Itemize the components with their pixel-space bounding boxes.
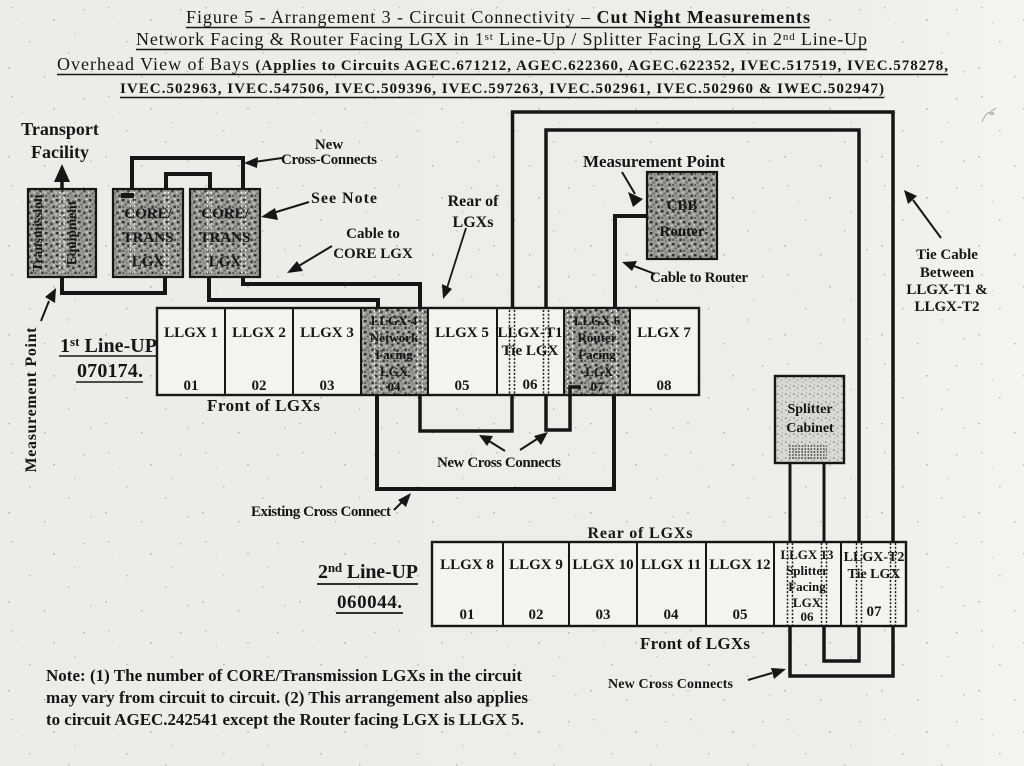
svg-text:Tie LGX: Tie LGX xyxy=(502,343,559,359)
svg-text:CORE LGX: CORE LGX xyxy=(333,246,413,262)
svg-text:LLGX 4: LLGX 4 xyxy=(371,313,418,328)
svg-text:Facing: Facing xyxy=(788,579,826,594)
svg-text:TRANS: TRANS xyxy=(123,230,174,246)
svg-text:Router: Router xyxy=(578,330,617,345)
svg-text:LGX: LGX xyxy=(132,254,165,270)
svg-text:03: 03 xyxy=(596,607,611,623)
svg-text:LLGX-T1: LLGX-T1 xyxy=(497,325,562,341)
svg-text:LGX: LGX xyxy=(380,364,409,379)
svg-text:LGXs: LGXs xyxy=(453,214,494,231)
svg-text:05: 05 xyxy=(455,378,470,394)
svg-text:LLGX 7: LLGX 7 xyxy=(637,325,691,341)
svg-text:LLGX 3: LLGX 3 xyxy=(300,325,354,341)
svg-text:Network: Network xyxy=(370,330,419,345)
svg-text:01: 01 xyxy=(184,378,199,394)
svg-text:04: 04 xyxy=(388,379,402,394)
svg-text:03: 03 xyxy=(320,378,335,394)
svg-text:CBB: CBB xyxy=(667,198,698,214)
svg-text:LLGX 11: LLGX 11 xyxy=(641,557,701,573)
svg-text:See Note: See Note xyxy=(311,190,377,207)
svg-text:LLGX 9: LLGX 9 xyxy=(509,557,563,573)
svg-text:Facility: Facility xyxy=(31,142,89,162)
svg-text:Front of LGXs: Front of LGXs xyxy=(640,634,750,653)
svg-text:Measurement Point: Measurement Point xyxy=(583,152,725,171)
svg-text:Splitter: Splitter xyxy=(786,563,828,578)
svg-text:Measurement Point: Measurement Point xyxy=(23,327,40,473)
svg-text:05: 05 xyxy=(733,607,748,623)
svg-text:New Cross Connects: New Cross Connects xyxy=(608,677,734,692)
svg-text:LLGX 2: LLGX 2 xyxy=(232,325,286,341)
svg-text:07: 07 xyxy=(591,379,605,394)
svg-text:LLGX-T1 &: LLGX-T1 & xyxy=(906,282,987,298)
svg-text:CORE/: CORE/ xyxy=(201,206,249,222)
svg-text:TRANS: TRANS xyxy=(200,230,251,246)
svg-text:LLGX 12: LLGX 12 xyxy=(709,557,770,573)
svg-text:Equipment: Equipment xyxy=(64,200,79,265)
svg-text:Between: Between xyxy=(920,265,975,281)
svg-text:Tie LGX: Tie LGX xyxy=(847,567,900,582)
svg-text:08: 08 xyxy=(657,378,672,394)
svg-text:Cabinet: Cabinet xyxy=(786,421,834,436)
svg-text:LGX: LGX xyxy=(793,595,822,610)
svg-text:060044.: 060044. xyxy=(337,592,402,613)
svg-text:Network Facing & Router Facing: Network Facing & Router Facing LGX in 1s… xyxy=(136,29,867,49)
svg-text:LLGX 6: LLGX 6 xyxy=(574,313,621,328)
svg-text:LLGX 10: LLGX 10 xyxy=(572,557,633,573)
svg-text:Facing: Facing xyxy=(375,347,413,362)
svg-text:IVEC.502963, IVEC.547506, IVEC: IVEC.502963, IVEC.547506, IVEC.509396, I… xyxy=(120,81,884,97)
svg-text:07: 07 xyxy=(867,604,883,620)
svg-text:Cross-Connects: Cross-Connects xyxy=(281,152,377,168)
svg-text:Router: Router xyxy=(660,224,705,240)
svg-text:Transport: Transport xyxy=(21,119,99,139)
svg-text:New: New xyxy=(315,137,343,153)
svg-text:02: 02 xyxy=(529,607,544,623)
svg-text:LLGX-T2: LLGX-T2 xyxy=(914,299,979,315)
svg-text:070174.: 070174. xyxy=(77,360,143,382)
svg-text:Cable to Router: Cable to Router xyxy=(650,270,748,286)
svg-text:Tie Cable: Tie Cable xyxy=(916,247,978,263)
svg-text:04: 04 xyxy=(664,607,680,623)
svg-text:to circuit AGEC.242541 except: to circuit AGEC.242541 except the Router… xyxy=(46,710,524,729)
svg-text:-LGX: -LGX xyxy=(581,364,614,379)
svg-text:may vary from circuit to circu: may vary from circuit to circuit. (2) Th… xyxy=(46,688,528,707)
svg-text:Rear of: Rear of xyxy=(448,193,499,210)
svg-text:Facing: Facing xyxy=(578,347,616,362)
svg-text:Cable to: Cable to xyxy=(346,226,400,242)
svg-text:Figure 5 - Arrangement 3 - Cir: Figure 5 - Arrangement 3 - Circuit Conne… xyxy=(186,7,810,27)
svg-text:CORE/: CORE/ xyxy=(124,206,172,222)
svg-text:06: 06 xyxy=(801,609,815,624)
svg-text:New Cross Connects: New Cross Connects xyxy=(437,455,561,471)
svg-text:Transmission: Transmission xyxy=(30,194,45,272)
svg-text:LGX: LGX xyxy=(209,254,242,270)
svg-text:LLGX 1: LLGX 1 xyxy=(164,325,218,341)
svg-text:LLGX 5: LLGX 5 xyxy=(435,325,489,341)
svg-text:01: 01 xyxy=(460,607,475,623)
svg-text:02: 02 xyxy=(252,378,267,394)
svg-text:LLGX-T2: LLGX-T2 xyxy=(844,550,905,565)
svg-text:LLGX 13: LLGX 13 xyxy=(780,547,834,562)
svg-text:LLGX 8: LLGX 8 xyxy=(440,557,494,573)
svg-text:Rear of LGXs: Rear of LGXs xyxy=(588,525,693,542)
svg-text:Note: (1) The number of CORE/T: Note: (1) The number of CORE/Transmissio… xyxy=(46,666,522,685)
svg-text:Front of LGXs: Front of LGXs xyxy=(207,396,320,415)
svg-text:Splitter: Splitter xyxy=(787,402,832,417)
svg-text:Existing Cross Connect: Existing Cross Connect xyxy=(251,504,391,520)
svg-text:06: 06 xyxy=(523,377,539,393)
